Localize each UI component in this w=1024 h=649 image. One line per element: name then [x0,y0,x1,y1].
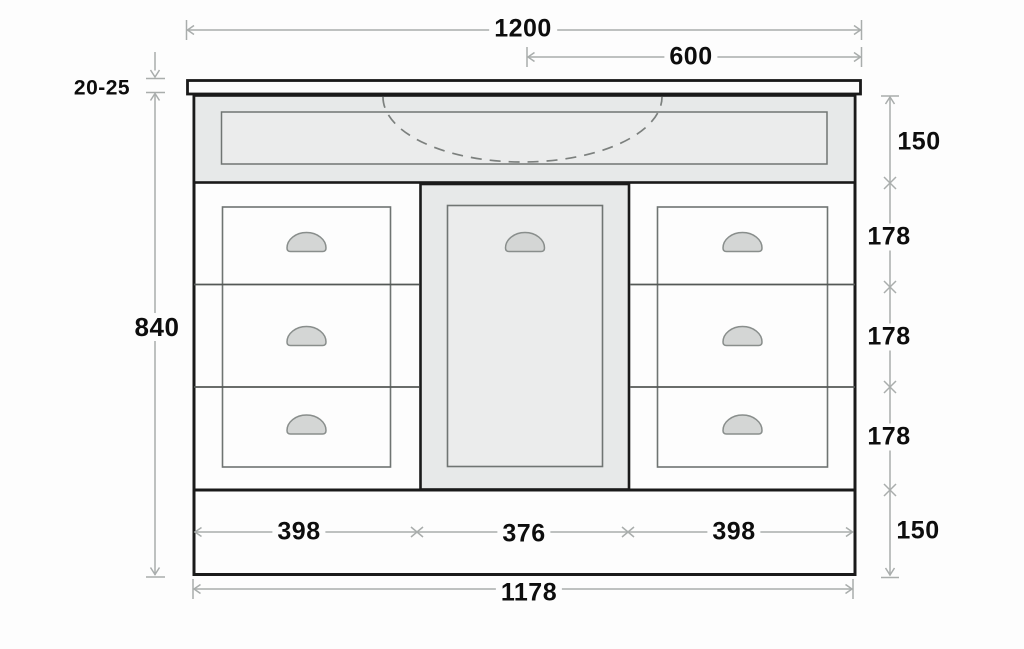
dim-label-carcass-width: 1178 [496,580,562,607]
dim-label-plinth-height: 150 [891,518,944,545]
dim-label-countertop-thickness: 20-25 [69,77,135,100]
dim-label-left-drawer-width: 398 [272,519,325,546]
countertop [188,81,861,95]
dim-label-right-drawer-width: 398 [707,519,760,546]
dim-line-countertop-thickness [146,52,165,101]
cabinet [188,81,861,575]
dim-label-door-width: 376 [497,521,550,548]
apron-inset-panel [222,112,828,164]
dim-label-apron-height: 150 [892,129,945,156]
dim-label-overall-width: 1200 [489,16,557,43]
dim-label-half-width: 600 [664,44,717,71]
vanity-dimension-diagram: 1200 600 20-25 840 150 178 178 178 150 3… [0,0,1024,649]
dim-label-drawer-top-height: 178 [862,224,915,251]
dim-label-cabinet-height: 840 [130,313,185,341]
dim-label-drawer-bottom-height: 178 [862,424,915,451]
dim-label-drawer-middle-height: 178 [862,324,915,351]
